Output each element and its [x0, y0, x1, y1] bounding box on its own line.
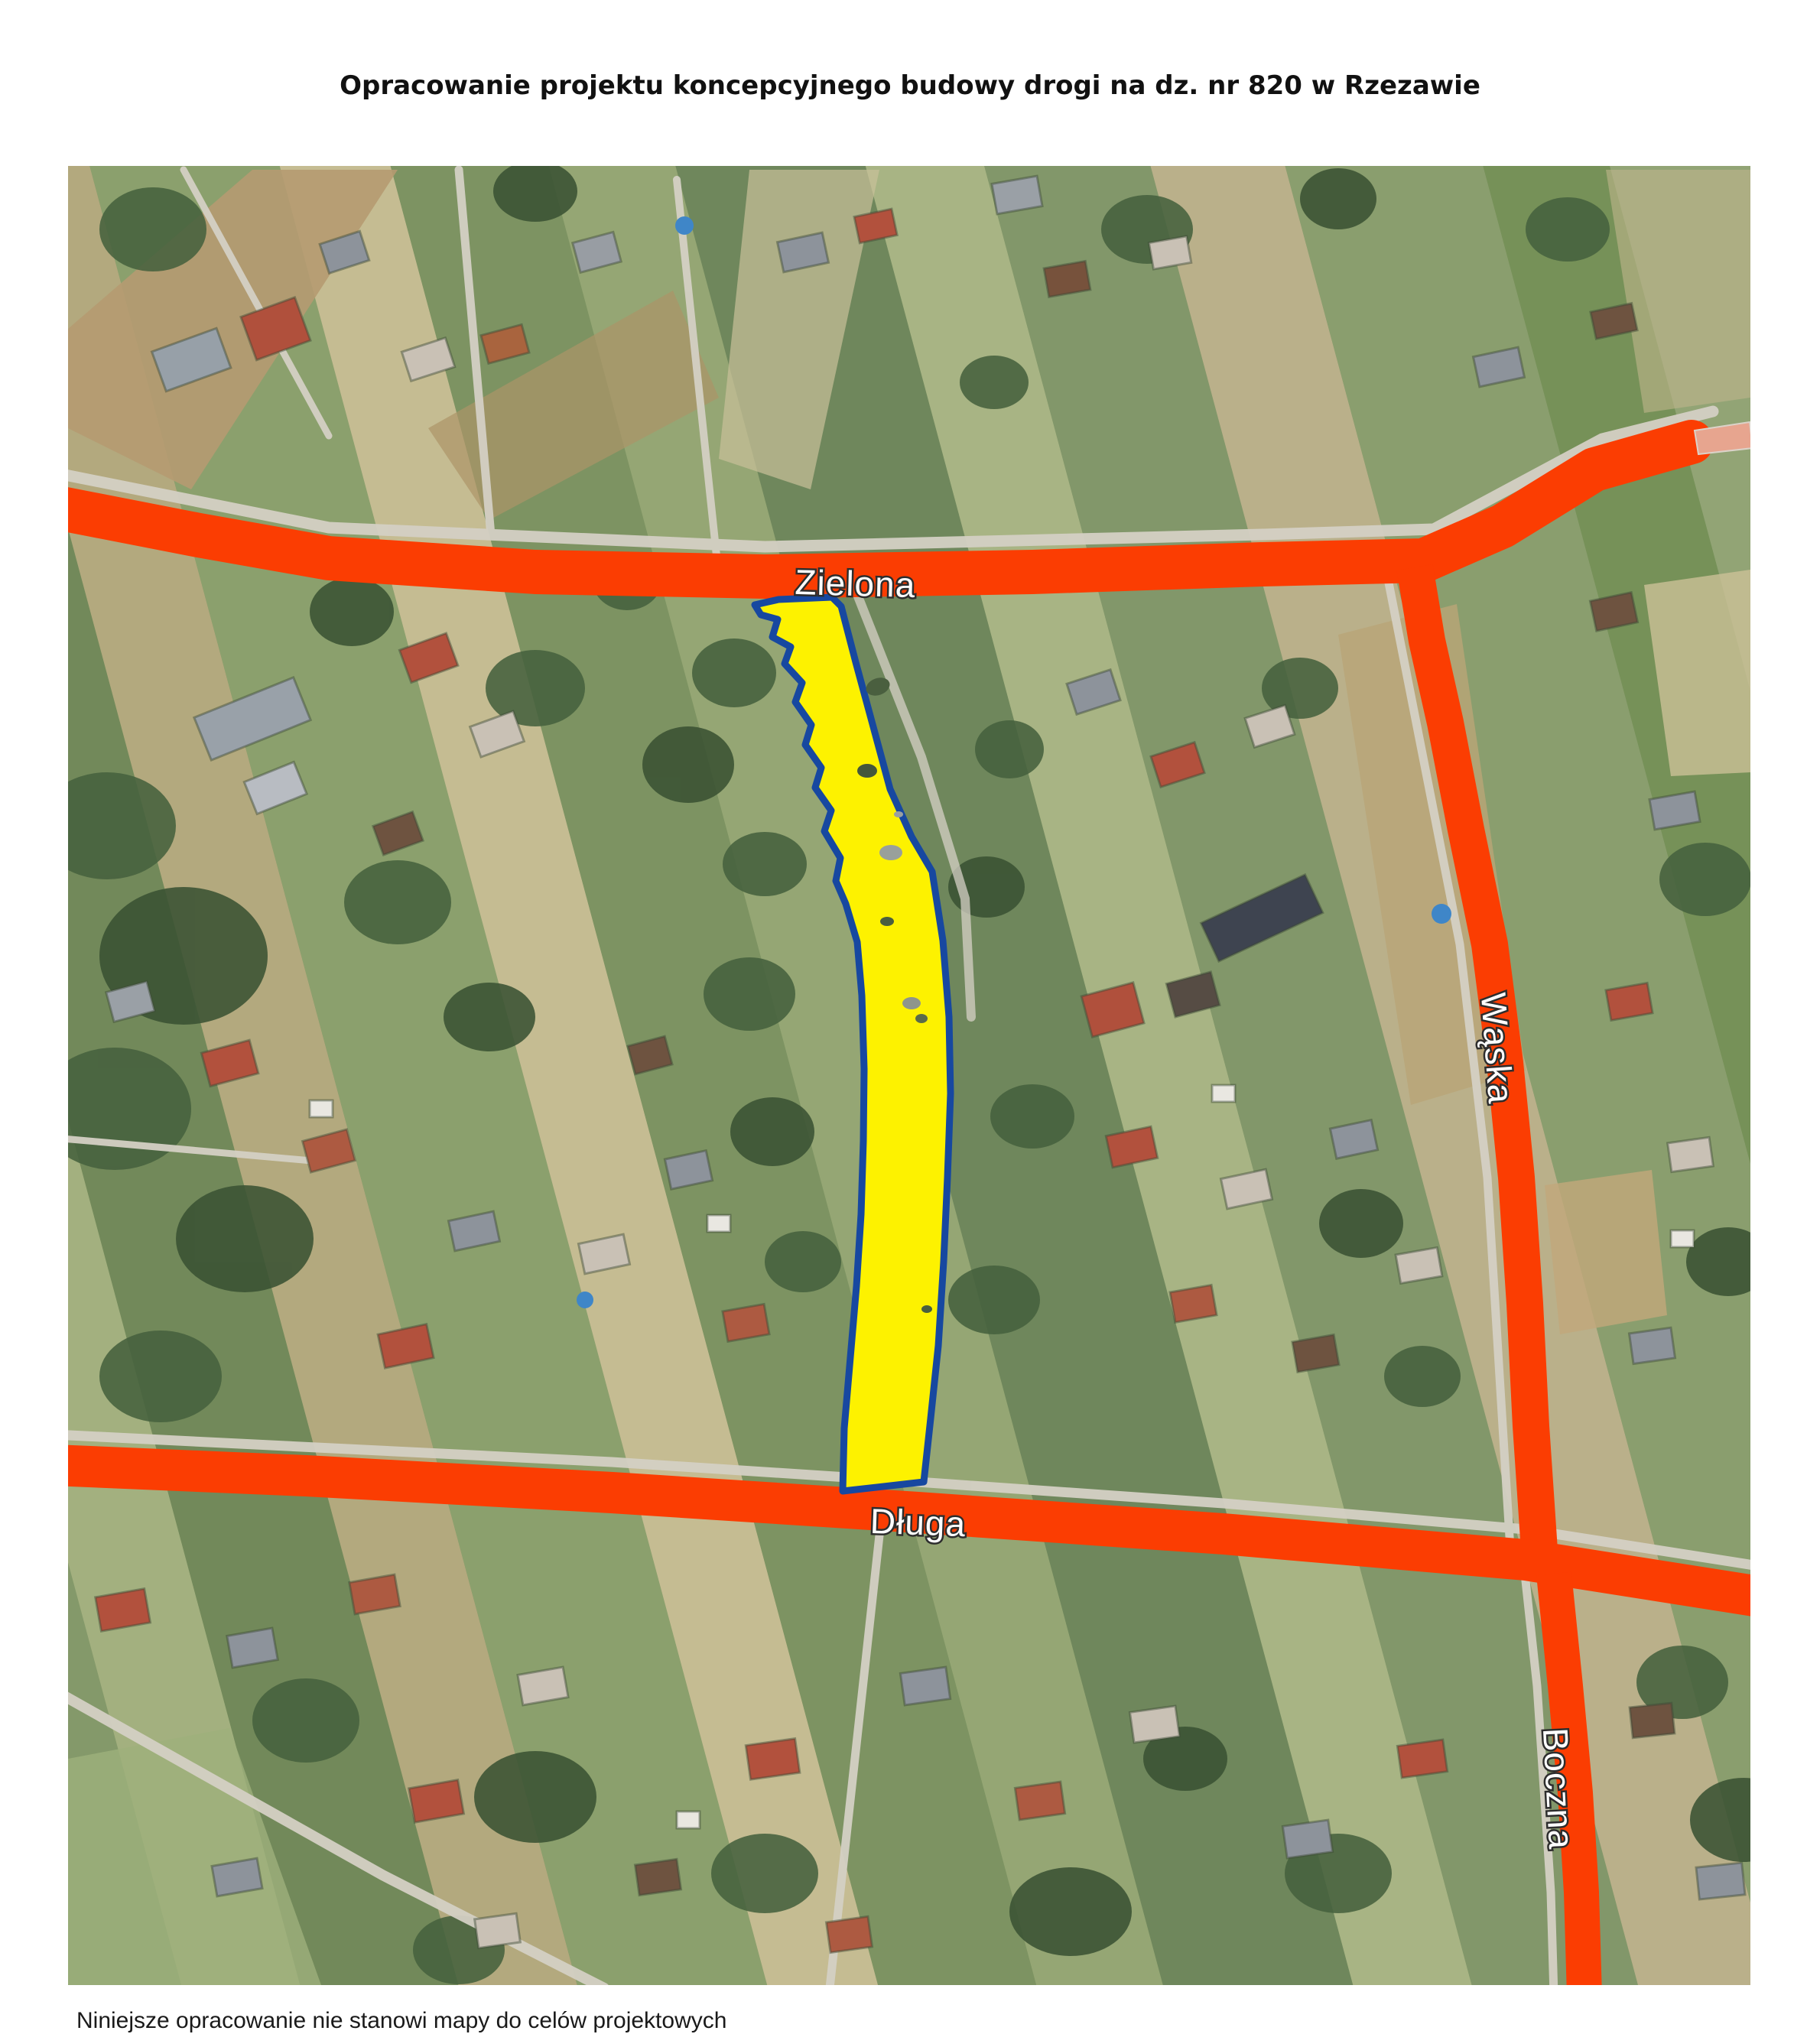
map-disclaimer-clipped: Niniejsze opracowanie nie stanowi mapy d… [76, 2008, 726, 2034]
street-label-waska: Wąska [1474, 991, 1521, 1105]
street-label-boczna: Boczna [1536, 1727, 1581, 1850]
street-label-dluga: Długa [869, 1501, 967, 1544]
street-label-zielona: Zielona [795, 562, 916, 605]
aerial-map-canvas: Zielona Wąska Długa Boczna [68, 166, 1750, 1985]
aerial-map: Zielona Wąska Długa Boczna [68, 166, 1750, 1985]
page-title: Opracowanie projektu koncepcyjnego budow… [0, 70, 1820, 101]
